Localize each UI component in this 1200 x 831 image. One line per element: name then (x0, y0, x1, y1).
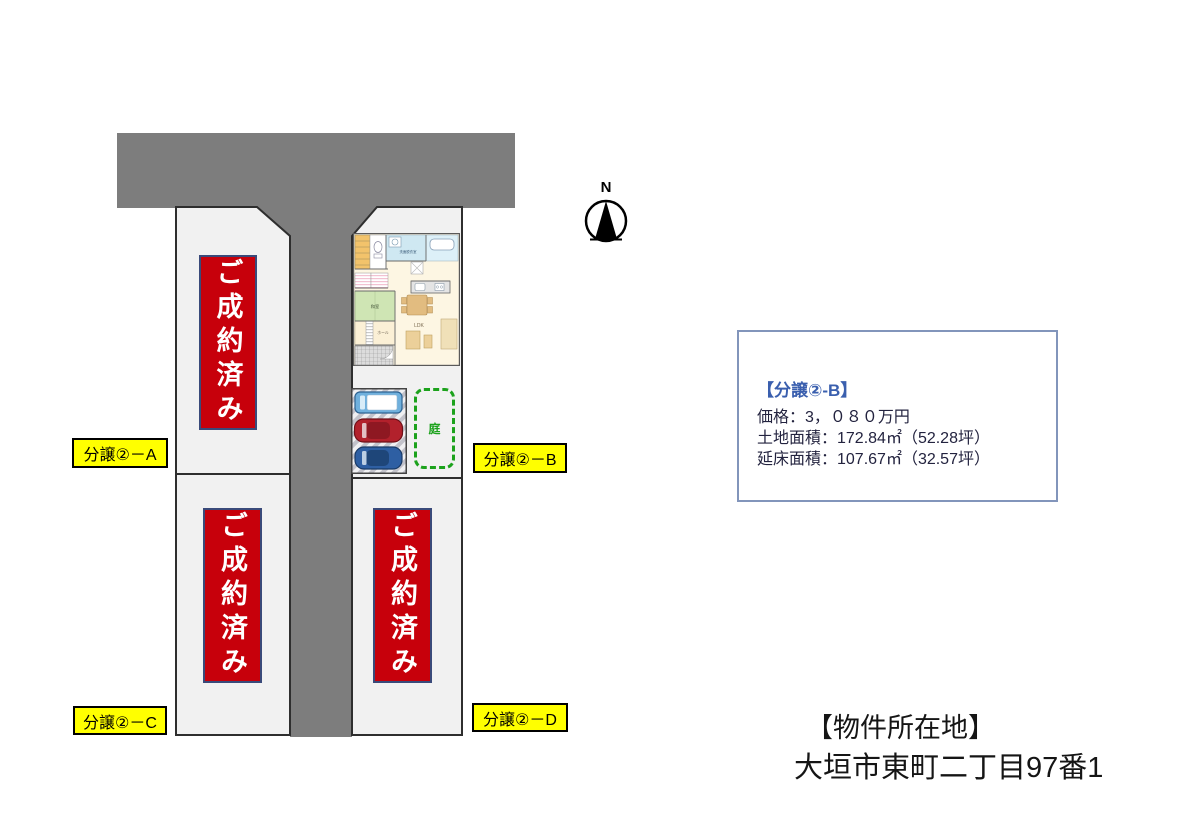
closets (355, 273, 388, 288)
washroom: 洗面脱衣室 (386, 235, 426, 261)
sold-banner-lot-a: ご成約済み (199, 255, 257, 430)
parking-area (351, 388, 407, 474)
location-address: 大垣市東町二丁目97番1 (794, 744, 1103, 786)
lot-b-info-box: 【分譲②-B】 価格：3，０８０万円 土地面積：172.84㎡（52.28坪） … (737, 330, 1058, 502)
main-road (117, 133, 515, 208)
washroom-label: 洗面脱衣室 (400, 249, 418, 254)
garden-plot: 庭 (414, 388, 455, 469)
bathroom (426, 235, 458, 261)
location-heading: 【物件所在地】 (806, 706, 995, 745)
white-van (355, 392, 402, 413)
blue-car (355, 447, 402, 469)
info-land-area: 土地面積：172.84㎡（52.28坪） (757, 428, 1056, 449)
entrance: 玄関 (355, 346, 393, 365)
floor-plan: 洗面脱衣室 和室 (353, 233, 460, 366)
stairs (355, 235, 370, 269)
sold-banner-lot-c: ご成約済み (203, 508, 262, 683)
tatami-room: 和室 (355, 291, 395, 321)
compass-icon (586, 201, 626, 241)
info-price: 価格：3，０８０万円 (757, 407, 1056, 428)
info-floor-area: 延床面積：107.67㎡（32.57坪） (757, 449, 1056, 470)
flyer-canvas: N (0, 0, 1200, 831)
lot-tag-a: 分譲②－A (72, 438, 168, 468)
garden-label: 庭 (428, 420, 440, 437)
lot-tag-d: 分譲②－D (472, 703, 568, 732)
lot-tag-b: 分譲②－B (473, 443, 567, 473)
ldk-label: LDK (414, 323, 424, 329)
kitchen-counter (411, 281, 450, 293)
lot-tag-c: 分譲②－C (73, 706, 167, 735)
compass-north-label: N (594, 179, 618, 196)
info-box-title: 【分譲②-B】 (757, 376, 1056, 401)
floor-hatch (411, 262, 423, 274)
tatami-label: 和室 (371, 303, 379, 310)
hall: ホール (355, 321, 395, 345)
toilet-room (370, 235, 386, 269)
red-car (355, 419, 403, 442)
sold-banner-lot-d: ご成約済み (373, 508, 432, 683)
hall-label: ホール (377, 330, 389, 335)
